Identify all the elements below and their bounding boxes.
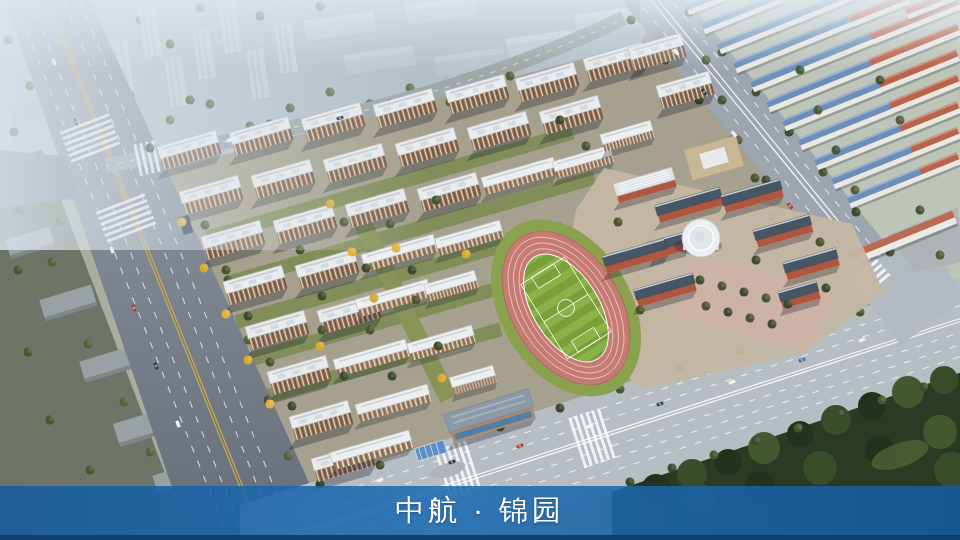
project-title: 中航 · 锦园 bbox=[0, 486, 960, 535]
presentation-slide: 中航 · 锦园 bbox=[0, 0, 960, 540]
banner-accent-strip bbox=[0, 535, 960, 540]
title-banner: 中航 · 锦园 bbox=[0, 486, 960, 540]
aerial-rendering bbox=[0, 0, 960, 540]
